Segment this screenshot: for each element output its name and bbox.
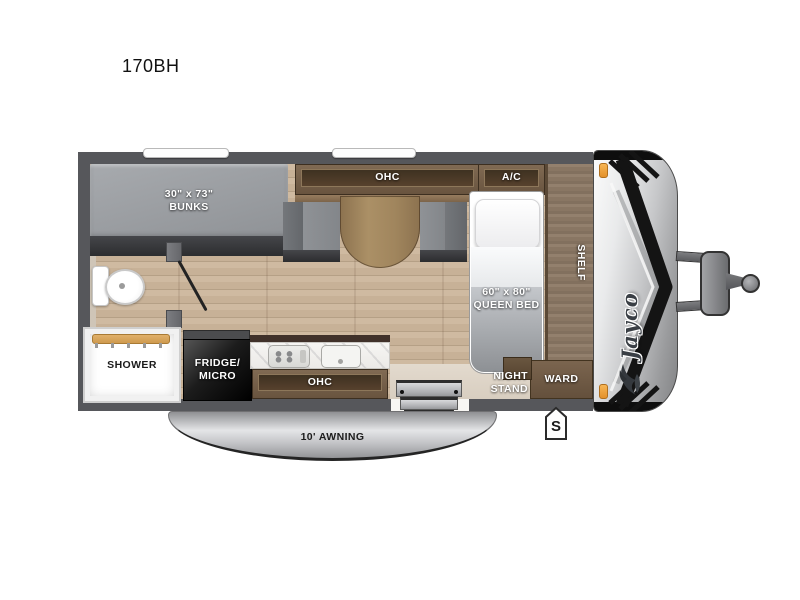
step-bolt-icon xyxy=(400,390,404,394)
ac-cabinet: A/C xyxy=(478,164,545,195)
dinette-bench-left-back xyxy=(283,202,303,252)
ac-label: A/C xyxy=(502,171,521,184)
brand-text: Jayco xyxy=(617,292,642,360)
hitch-ball-icon xyxy=(741,274,760,293)
queen-bed: 60" x 80" QUEEN BED xyxy=(470,192,543,373)
marker-light-icon xyxy=(599,163,608,178)
floorplan-canvas: 170BH 30" x 73" BUNKS OHC xyxy=(0,0,800,600)
propane-tank-cover xyxy=(700,251,730,316)
awning-label: 10' AWNING xyxy=(169,431,496,443)
spare-marker-letter: S xyxy=(551,418,561,435)
dinette-bench-left xyxy=(303,202,340,252)
sink-drain-icon xyxy=(338,359,343,364)
shelf-panel: SHELF xyxy=(545,164,593,360)
spare-tire-marker: S xyxy=(544,406,568,442)
bunks-base xyxy=(90,236,294,256)
awning: 10' AWNING xyxy=(168,411,497,461)
model-title: 170BH xyxy=(122,56,180,77)
shelf-label: SHELF xyxy=(574,244,587,280)
step-bolt-icon xyxy=(454,390,458,394)
dinette-base-left xyxy=(283,250,340,262)
bed-blanket xyxy=(471,247,542,289)
bird-icon xyxy=(615,362,643,398)
fridge-micro-label: FRIDGE/ MICRO xyxy=(195,357,240,383)
entry-step-2 xyxy=(400,397,458,410)
stove-control-panel xyxy=(300,350,306,363)
bath-wall-stub-bottom xyxy=(166,310,182,328)
trailer-body: 30" x 73" BUNKS OHC A/C 60" x 80" xyxy=(78,152,593,411)
ward-cabinet: WARD xyxy=(530,360,593,399)
dinette-base-right xyxy=(420,250,467,262)
queen-bed-label: 60" x 80" QUEEN BED xyxy=(470,286,543,312)
bunks-label: 30" x 73" BUNKS xyxy=(165,188,214,214)
window xyxy=(332,148,416,158)
bunks: 30" x 73" BUNKS xyxy=(90,164,288,238)
stove-burners-icon xyxy=(273,350,295,363)
kitchen-ohc-label: OHC xyxy=(308,376,333,389)
shower: SHOWER xyxy=(83,327,181,403)
dinette-ohc-label: OHC xyxy=(375,171,400,184)
dinette-bench-right-back xyxy=(445,202,467,252)
toilet xyxy=(105,269,145,305)
shower-curtain-hooks xyxy=(95,343,165,348)
entry-steps xyxy=(396,380,462,397)
toilet-flush-icon xyxy=(119,283,125,289)
jayco-logo: Jayco xyxy=(598,290,660,400)
stove xyxy=(268,345,310,368)
dinette-ohc-cabinet: OHC xyxy=(295,164,480,195)
bath-wall-stub-top xyxy=(166,242,182,262)
window xyxy=(143,148,229,158)
shower-label: SHOWER xyxy=(85,359,179,371)
sink xyxy=(321,345,361,368)
ward-label: WARD xyxy=(545,373,579,386)
kitchen-ohc-cabinet: OHC xyxy=(252,369,388,399)
dinette-bench-right xyxy=(420,202,445,252)
fridge-micro: FRIDGE/ MICRO xyxy=(183,339,252,401)
bed-pillow xyxy=(475,199,540,249)
